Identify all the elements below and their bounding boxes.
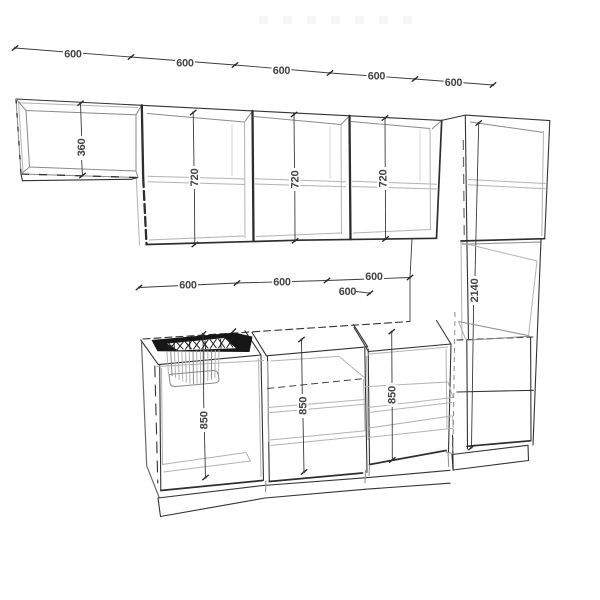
svg-text:600: 600 [445,77,463,89]
svg-text:720: 720 [378,169,390,187]
svg-text:720: 720 [290,170,302,188]
svg-text:600: 600 [273,65,291,77]
svg-text:600: 600 [273,277,291,289]
svg-text:600: 600 [339,286,357,298]
svg-text:360: 360 [76,138,88,156]
svg-text:850: 850 [198,411,210,429]
svg-text:2140: 2140 [469,278,481,302]
svg-text:600: 600 [64,48,82,60]
svg-text:600: 600 [176,57,194,69]
svg-text:600: 600 [365,271,383,283]
svg-text:600: 600 [179,279,197,291]
svg-text:600: 600 [368,70,386,82]
svg-text:720: 720 [189,168,201,186]
svg-text:850: 850 [297,397,309,415]
svg-text:850: 850 [387,386,399,404]
